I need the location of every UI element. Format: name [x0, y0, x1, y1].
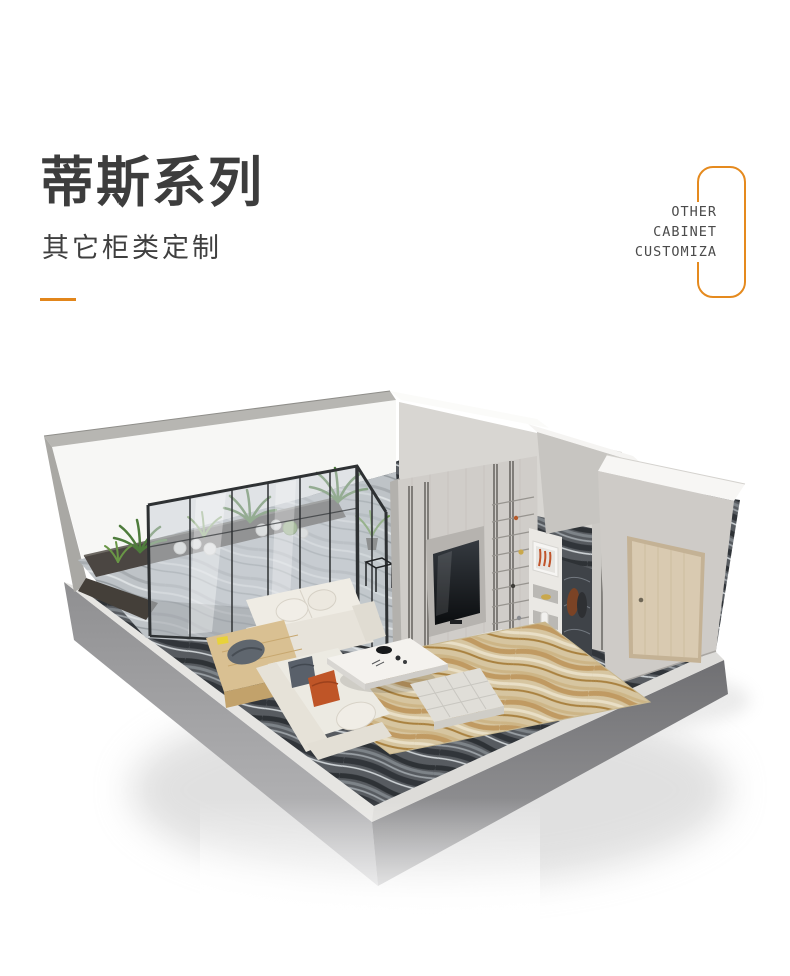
caption-line-3: CUSTOMIZA	[632, 242, 720, 262]
caption-line-2: CABINET	[650, 222, 720, 242]
product-page: 蒂斯系列 其它柜类定制 OTHER CABINET CUSTOMIZA	[0, 0, 790, 976]
title-underline	[40, 298, 76, 301]
caption-line-1: OTHER	[668, 202, 720, 222]
base-fade	[200, 798, 540, 976]
page-title: 蒂斯系列	[40, 152, 264, 214]
english-caption: OTHER CABINET CUSTOMIZA	[632, 202, 720, 262]
door-handle	[639, 598, 644, 603]
entry-wall	[598, 455, 745, 687]
room-render	[0, 376, 790, 976]
page-subtitle: 其它柜类定制	[42, 226, 222, 265]
